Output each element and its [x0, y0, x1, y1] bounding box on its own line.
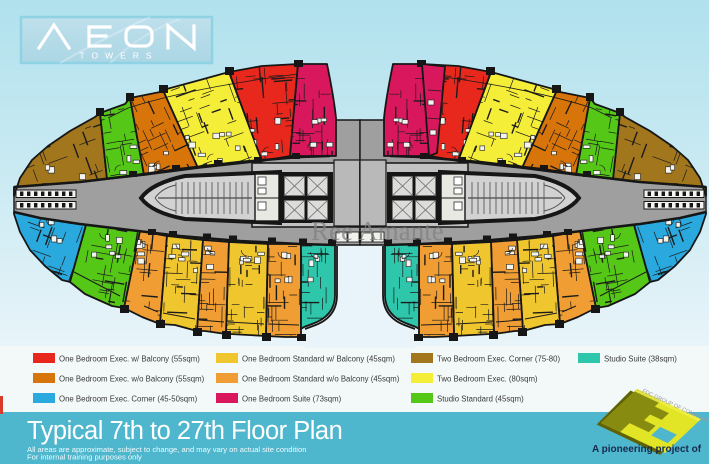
svg-text:One Bedroom Standard w/ Balcon: One Bedroom Standard w/ Balcony (45sqm) [242, 355, 395, 364]
svg-text:One Bedroom Suite (73sqm): One Bedroom Suite (73sqm) [242, 395, 342, 404]
svg-text:One Bedroom Exec. w/o Balcony: One Bedroom Exec. w/o Balcony (55sqm) [59, 375, 205, 384]
svg-text:One Bedroom Exec. Corner (45-5: One Bedroom Exec. Corner (45-50sqm) [59, 395, 198, 404]
svg-text:Two Bedroom Exec. (80sqm): Two Bedroom Exec. (80sqm) [437, 375, 538, 384]
svg-text:For internal training purposes: For internal training purposes only [27, 453, 142, 462]
svg-text:A pioneering project of: A pioneering project of [592, 444, 702, 455]
svg-text:Typical 7th to 27th Floor Plan: Typical 7th to 27th Floor Plan [27, 417, 342, 445]
svg-text:One Bedroom Exec. w/ Balcony (: One Bedroom Exec. w/ Balcony (55sqm) [59, 355, 200, 364]
svg-text:Studio Standard (45sqm): Studio Standard (45sqm) [437, 395, 524, 404]
svg-text:Two Bedroom Exec. Corner (75-8: Two Bedroom Exec. Corner (75-80) [437, 355, 560, 364]
svg-text:One Bedroom Standard w/o Balco: One Bedroom Standard w/o Balcony (45sqm) [242, 375, 400, 384]
svg-text:TOWERS: TOWERS [79, 51, 158, 61]
svg-text:Studio Suite (38sqm): Studio Suite (38sqm) [604, 355, 677, 364]
svg-text:Ree Amante: Ree Amante [311, 216, 444, 246]
